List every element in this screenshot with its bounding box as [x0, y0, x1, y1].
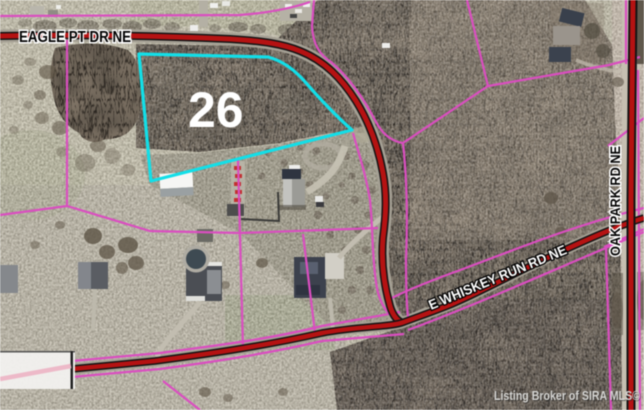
svg-text:26: 26: [188, 82, 244, 138]
svg-text:OAK PARK RD NE: OAK PARK RD NE: [608, 146, 623, 256]
svg-text:Listing Broker of SIRA MLS©: Listing Broker of SIRA MLS©: [494, 389, 641, 403]
svg-text:EAGLE PT DR NE: EAGLE PT DR NE: [19, 29, 131, 46]
